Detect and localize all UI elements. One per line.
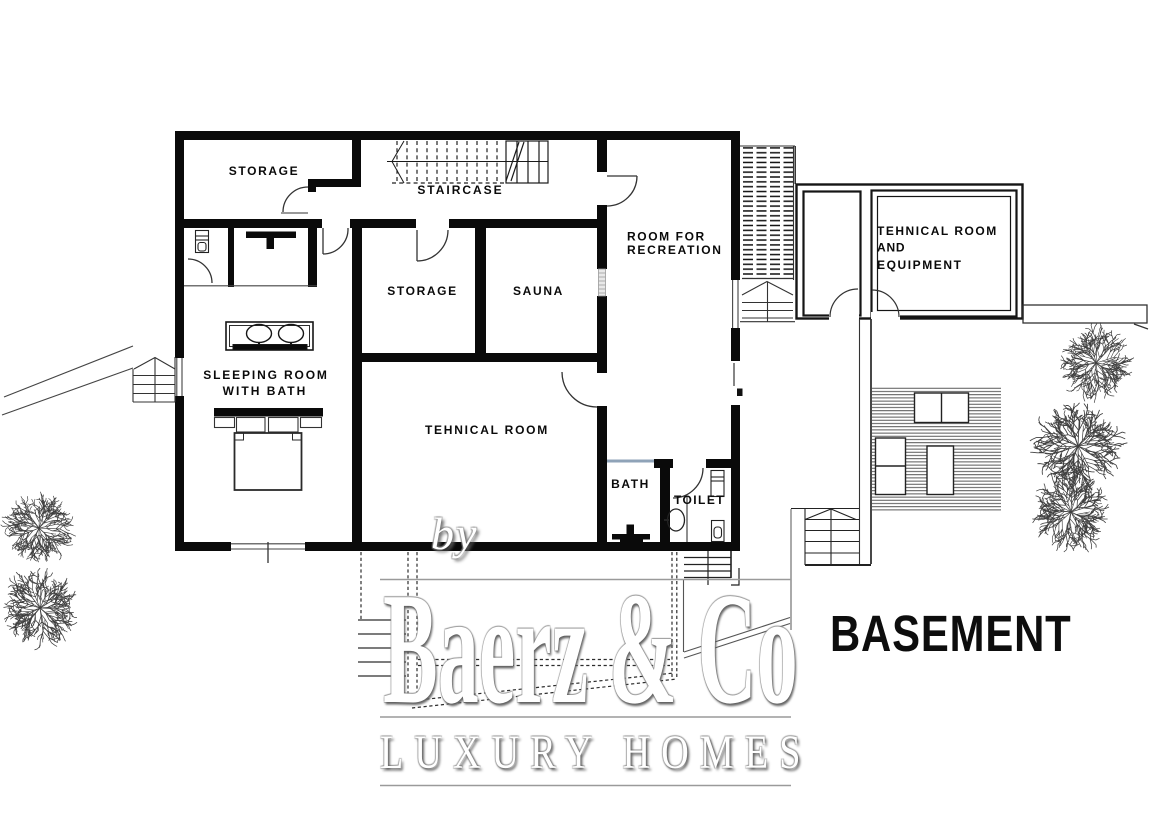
svg-text:TEHNICAL ROOM: TEHNICAL ROOM	[425, 423, 549, 437]
svg-text:ROOM FOR: ROOM FOR	[627, 230, 706, 244]
svg-text:STAIRCASE: STAIRCASE	[417, 183, 503, 197]
svg-text:BATH: BATH	[611, 477, 650, 491]
svg-text:AND: AND	[877, 241, 905, 255]
svg-text:STORAGE: STORAGE	[387, 284, 458, 298]
svg-text:SAUNA: SAUNA	[513, 284, 564, 298]
svg-text:EQUIPMENT: EQUIPMENT	[877, 258, 962, 272]
svg-text:RECREATION: RECREATION	[627, 243, 723, 257]
svg-text:TEHNICAL ROOM: TEHNICAL ROOM	[877, 224, 998, 238]
svg-text:WITH BATH: WITH BATH	[223, 384, 308, 398]
svg-text:TOILET: TOILET	[674, 493, 725, 507]
svg-text:STORAGE: STORAGE	[229, 164, 300, 178]
svg-text:SLEEPING ROOM: SLEEPING ROOM	[203, 368, 329, 382]
